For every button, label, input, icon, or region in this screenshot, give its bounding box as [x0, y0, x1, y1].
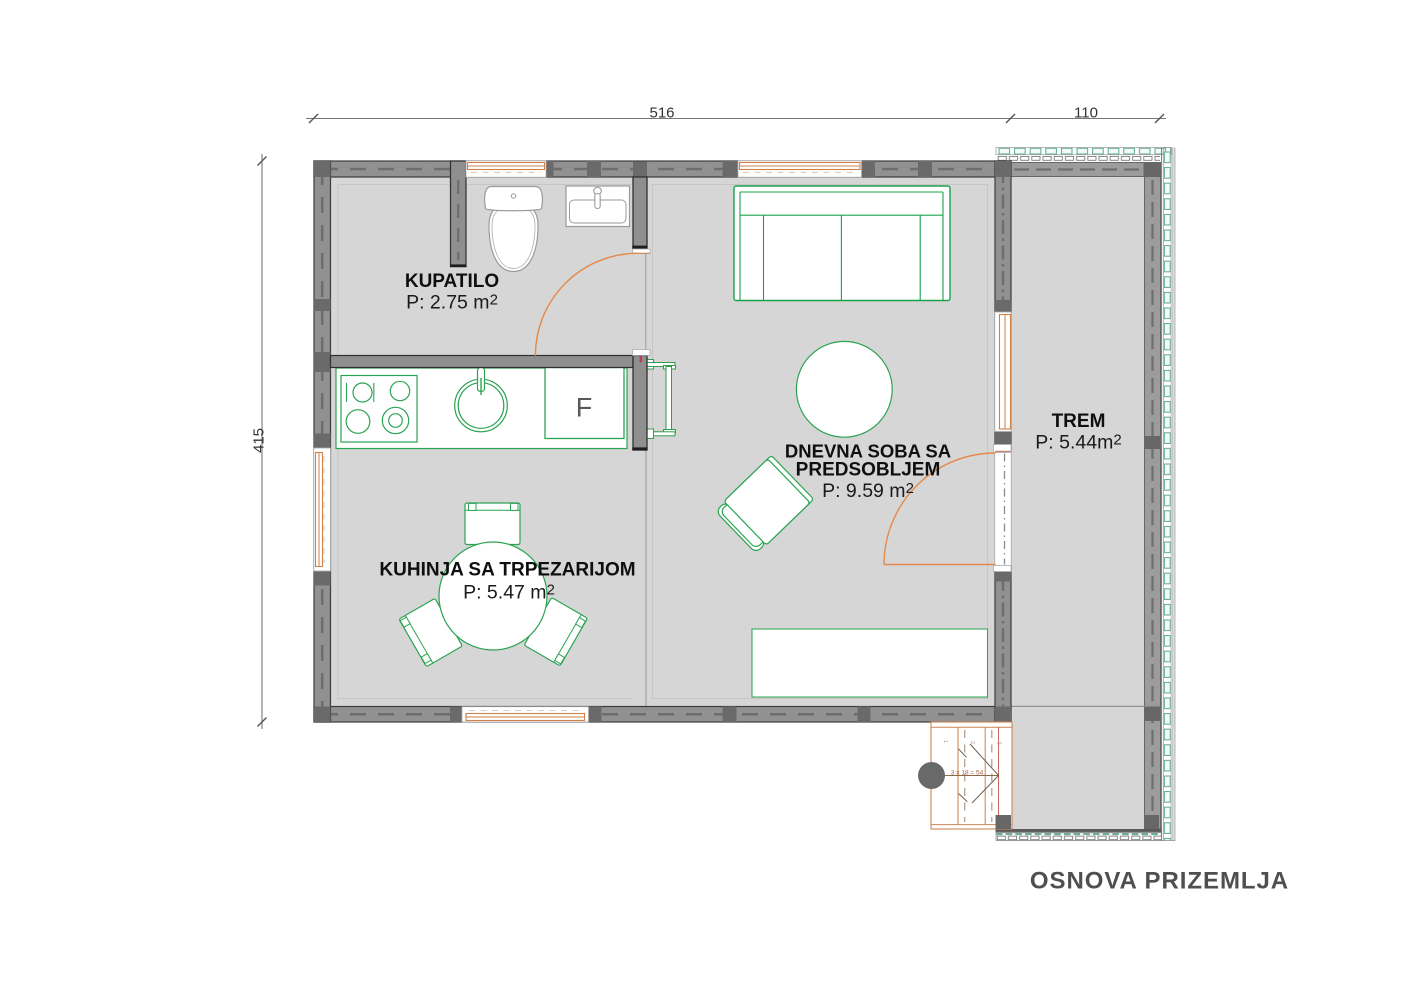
svg-text:3 x 18 = 54: 3 x 18 = 54 [951, 770, 984, 777]
svg-text:KUHINJA SA TRPEZARIJOM: KUHINJA SA TRPEZARIJOM [379, 560, 635, 581]
svg-text:3: 3 [996, 741, 1002, 744]
svg-text:DNEVNA SOBA SA: DNEVNA SOBA SA [785, 441, 951, 462]
svg-text:1: 1 [942, 740, 948, 743]
svg-text:2: 2 [969, 741, 975, 744]
svg-text:516: 516 [649, 104, 674, 121]
svg-text:P: 5.47 m2: P: 5.47 m2 [463, 581, 555, 603]
svg-text:P: 9.59 m2: P: 9.59 m2 [822, 480, 914, 502]
svg-text:415: 415 [251, 428, 268, 453]
svg-text:KUPATILO: KUPATILO [405, 271, 499, 292]
svg-text:P: 2.75 m2: P: 2.75 m2 [406, 291, 498, 313]
svg-text:P: 5.44m2: P: 5.44m2 [1035, 431, 1121, 453]
svg-text:OSNOVA PRIZEMLJA: OSNOVA PRIZEMLJA [1030, 868, 1289, 895]
svg-text:PREDSOBLJEM: PREDSOBLJEM [796, 460, 941, 481]
svg-text:F: F [576, 393, 593, 423]
svg-text:110: 110 [1074, 104, 1098, 121]
svg-text:TREM: TREM [1052, 411, 1106, 432]
